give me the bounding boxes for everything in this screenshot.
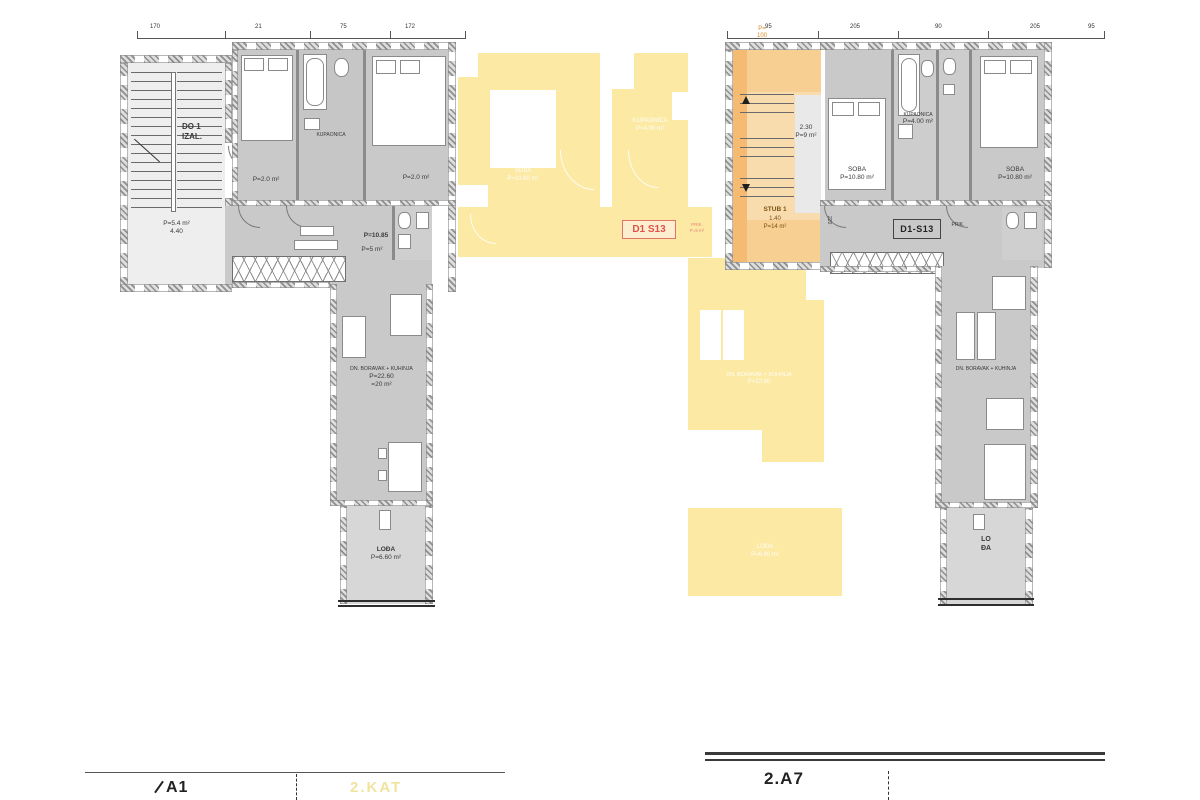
wall <box>1044 42 1052 268</box>
sofa <box>984 444 1026 500</box>
bedroom-left-label: SOBA P=10.80 m² <box>828 166 886 182</box>
wall <box>725 262 825 270</box>
toilet <box>398 212 411 229</box>
cabinet <box>956 312 975 360</box>
unit-code-red: D1 S13 <box>622 220 676 239</box>
bathtub-inner <box>306 58 324 106</box>
stairs <box>177 72 222 212</box>
vertical-dimension: 220 <box>822 216 832 224</box>
kitchen-counter <box>232 256 346 282</box>
bath-label: KUPAONICA <box>299 132 363 138</box>
loggia <box>947 508 1025 604</box>
sheet-title-left: A1 <box>166 779 188 797</box>
wall <box>425 506 433 604</box>
area-a-area: P=10.80 m² <box>486 176 560 184</box>
table <box>388 442 422 492</box>
floor-plan-sheet: 170 21 75 172 P=5.4 m² 4.40 DO 1 IZAL. K… <box>0 0 1200 800</box>
dimension-number: 75 <box>340 24 347 30</box>
area-b-name: KUPAONICA <box>614 118 686 126</box>
area-b-label: KUPAONICA P=4.00 m² <box>614 118 686 134</box>
wing-cutout <box>688 430 762 462</box>
terrace-name: LOĐA <box>726 544 804 552</box>
title-rule-left <box>85 772 505 773</box>
dimension-number: 170 <box>150 24 160 30</box>
wing-cutout <box>723 310 744 360</box>
wall <box>232 42 456 50</box>
dimension-tick <box>818 31 819 39</box>
area-b-notch <box>672 92 688 120</box>
balcony-edge <box>938 598 1034 606</box>
partition-wall <box>392 206 395 260</box>
stair-divider <box>171 72 176 212</box>
dimension-tick <box>225 31 226 39</box>
stair-mid-area: P=9 m² <box>786 132 826 140</box>
wall <box>340 506 347 604</box>
dimension-tick <box>390 31 391 39</box>
chair <box>378 470 387 481</box>
wall <box>120 63 128 292</box>
bath-area: P=4.00 m² <box>894 118 942 126</box>
dimension-tick <box>727 31 728 39</box>
wall <box>1030 266 1038 508</box>
sink <box>1024 212 1037 229</box>
pillow <box>244 58 264 71</box>
wall <box>120 284 232 292</box>
dimension-tick <box>988 31 989 39</box>
stair-dim: 1.40 <box>740 215 810 223</box>
sheet-title-right: 2.A7 <box>764 769 804 789</box>
wall <box>232 282 330 288</box>
wing-label: DN. BORAVAK + KUHINJA P=22.60 <box>700 372 818 387</box>
dimension-line <box>137 38 466 39</box>
pillow <box>984 60 1006 74</box>
corridor-tiny-label: PRIK. <box>946 222 970 228</box>
stair-area: P=14 m² <box>740 223 810 231</box>
terrace-area: P=6.60 m² <box>726 552 804 560</box>
unit-code-black: D1-S13 <box>893 219 941 239</box>
title-rule-right-2 <box>705 759 1105 761</box>
balcony-edge <box>338 600 435 607</box>
sink <box>416 212 429 229</box>
title-rule-right-1 <box>705 752 1105 755</box>
chair <box>378 448 387 459</box>
wardrobe <box>390 294 422 336</box>
loggia-label: LO ĐA <box>958 536 1014 554</box>
dashed-tick <box>296 774 297 800</box>
loggia-label: LOĐA P=6.60 m² <box>356 546 416 562</box>
wing-area: P=22.60 <box>700 379 818 387</box>
dimension-number: 172 <box>405 24 415 30</box>
pillow <box>1010 60 1032 74</box>
stair-room-label: P=5.4 m² 4.40 <box>128 220 225 236</box>
pillow <box>400 60 420 74</box>
loggia-name-1: LO <box>958 536 1014 545</box>
wing-name: DN. BORAVAK + KUHINJA <box>700 372 818 379</box>
exit-label: DO 1 IZAL. <box>182 122 230 142</box>
living-area2: =20 m² <box>337 381 426 389</box>
stair-top-100: 100 <box>750 33 774 40</box>
stair-main-label: STUB 1 1.40 P=14 m² <box>740 206 810 231</box>
stair-direction-arrow <box>742 96 750 104</box>
exit-label-line2: IZAL. <box>182 132 230 142</box>
loggia-name: LOĐA <box>356 546 416 554</box>
table <box>300 226 334 236</box>
dimension-tick <box>310 31 311 39</box>
stair-direction-arrow <box>742 184 750 192</box>
dimension-tick <box>137 31 138 39</box>
wall <box>725 50 733 268</box>
stair-mid-dim: 2.30 <box>786 124 826 132</box>
hall-area-label2: P=5 m² <box>346 246 398 254</box>
wall <box>120 55 232 63</box>
sofa <box>342 316 366 358</box>
wall <box>426 284 433 506</box>
terrace-label: LOĐA P=6.60 m² <box>726 544 804 560</box>
toilet <box>943 58 956 75</box>
area-a-cutout <box>490 90 556 168</box>
wall <box>448 42 456 292</box>
stair-room-dim: 4.40 <box>128 228 225 236</box>
planter <box>973 514 985 530</box>
area-b-area: P=4.00 m² <box>614 126 686 134</box>
bedroom-right-name: SOBA <box>986 166 1044 174</box>
wardrobe <box>992 276 1026 310</box>
pillow <box>376 60 396 74</box>
sink <box>943 84 955 95</box>
toilet <box>334 58 349 77</box>
stair-name: STUB 1 <box>740 206 810 215</box>
toilet <box>921 60 934 77</box>
wall <box>725 42 825 50</box>
pillow <box>832 102 854 116</box>
title-tick-mark <box>154 781 164 794</box>
dimension-number: 21 <box>255 24 262 30</box>
loggia-area: P=6.60 m² <box>356 554 416 562</box>
bedroom-left-area: P=10.80 m² <box>828 174 886 182</box>
bath-label: KUPAONICA P=4.00 m² <box>894 112 942 126</box>
area-a-notch <box>458 53 478 77</box>
dimension-number: 205 <box>850 24 860 30</box>
cabinet <box>977 312 996 360</box>
stair-landing <box>795 95 821 213</box>
living-label: DN. BORAVAK + KUHINJA <box>942 366 1030 372</box>
dashed-tick <box>888 771 889 800</box>
dimension-number: 95 <box>1088 24 1095 30</box>
loggia-name-2: ĐA <box>958 545 1014 554</box>
corridor-tiny-label: PRIK. P=9 m² <box>684 222 710 234</box>
sink <box>304 118 320 130</box>
closet-label: P=2.0 m² <box>390 174 442 182</box>
wing-cutout <box>700 310 721 360</box>
toilet <box>1006 212 1019 229</box>
exit-label-line1: DO 1 <box>182 122 230 132</box>
stair-top-p: P= <box>750 26 774 33</box>
wall <box>940 508 947 606</box>
dimension-number: 205 <box>1030 24 1040 30</box>
wall <box>935 266 942 508</box>
dimension-line <box>727 38 1105 39</box>
wall <box>820 266 938 272</box>
closet-label: P=2.0 m² <box>240 176 292 184</box>
stair-top-label: P= 100 <box>750 26 774 40</box>
dimension-tick <box>1104 31 1105 39</box>
bedroom-right-area: P=10.80 m² <box>986 174 1044 182</box>
area-a-label: SOBA P=10.80 m² <box>486 168 560 184</box>
floor-watermark: 2.KAT <box>350 779 402 796</box>
washer <box>398 234 411 249</box>
corridor-tiny-2: P=9 m² <box>684 228 710 234</box>
stair-room-area: P=5.4 m² <box>128 220 225 228</box>
living-label: DN. BORAVAK + KUHINJA P=22.60 =20 m² <box>337 366 426 389</box>
dimension-number: 90 <box>935 24 942 30</box>
wall <box>1025 508 1033 606</box>
stairwell-highlight-top <box>747 50 821 92</box>
wall <box>330 284 337 506</box>
pillow <box>268 58 288 71</box>
bedroom-left-name: SOBA <box>828 166 886 174</box>
table <box>986 398 1024 430</box>
area-b-notch <box>612 53 634 89</box>
dimension-tick <box>465 31 466 39</box>
stairs <box>740 138 794 164</box>
bathtub-inner <box>901 58 917 112</box>
bedroom-right-label: SOBA P=10.80 m² <box>986 166 1044 182</box>
dimension-tick <box>898 31 899 39</box>
wall <box>820 42 1052 50</box>
area-a-name: SOBA <box>486 168 560 176</box>
living-name: DN. BORAVAK + KUHINJA <box>337 366 426 373</box>
living-area: P=22.60 <box>337 373 426 381</box>
pillow <box>858 102 880 116</box>
planter <box>379 510 391 530</box>
stair-mid-label: 2.30 P=9 m² <box>786 124 826 140</box>
table <box>294 240 338 250</box>
